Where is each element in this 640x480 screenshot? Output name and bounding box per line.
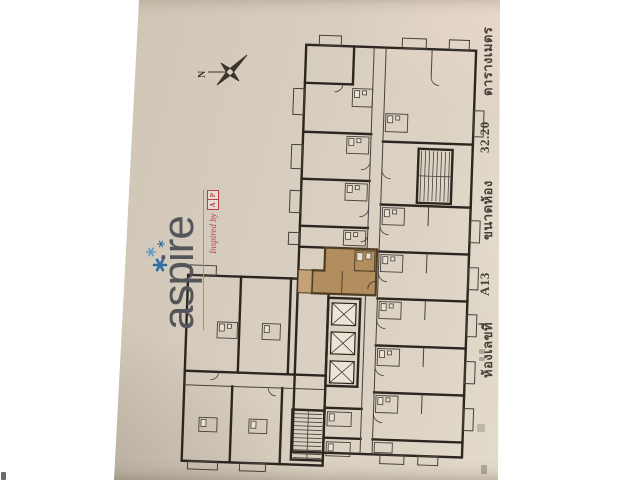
label-room-size: ขนาดห้อง [477, 180, 498, 240]
logo-tagline-row: Inspired by AP [207, 190, 219, 330]
label-area-unit: ตารางเมตร [477, 27, 498, 96]
edge-annotation [477, 424, 485, 432]
edge-annotation [479, 349, 485, 354]
floor-plan-photo: aspire Inspired by AP N [0, 0, 640, 480]
value-room-size: 32.20 [477, 121, 493, 153]
logo-tagline: Inspired by [208, 213, 218, 253]
ap-letter-a: A [208, 200, 218, 209]
north-compass: N [198, 52, 262, 100]
edge-annotation [1, 472, 6, 480]
interior-partitions [419, 49, 434, 414]
unit-info-strip: ห้องเลขที่ A13 ขนาดห้อง 32.20 ตารางเมตร [473, 18, 497, 448]
logo-divider [203, 190, 204, 330]
stair-treads-east [417, 151, 453, 202]
highlighted-unit-a13 [298, 247, 378, 296]
compass-star-dark-halves [217, 55, 247, 85]
ap-logo: AP [207, 190, 219, 210]
photo-page: aspire Inspired by AP N [0, 0, 640, 480]
edge-annotation [479, 357, 485, 361]
unit-a13-balcony [298, 270, 313, 293]
elevators [329, 303, 356, 384]
value-room-number: A13 [477, 272, 493, 296]
compass-north-label: N [198, 70, 208, 78]
ap-letter-p: P [208, 191, 218, 200]
edge-annotation [481, 465, 487, 474]
aspire-logo: aspire Inspired by AP [156, 182, 220, 330]
logo-stars-icon [143, 238, 171, 274]
